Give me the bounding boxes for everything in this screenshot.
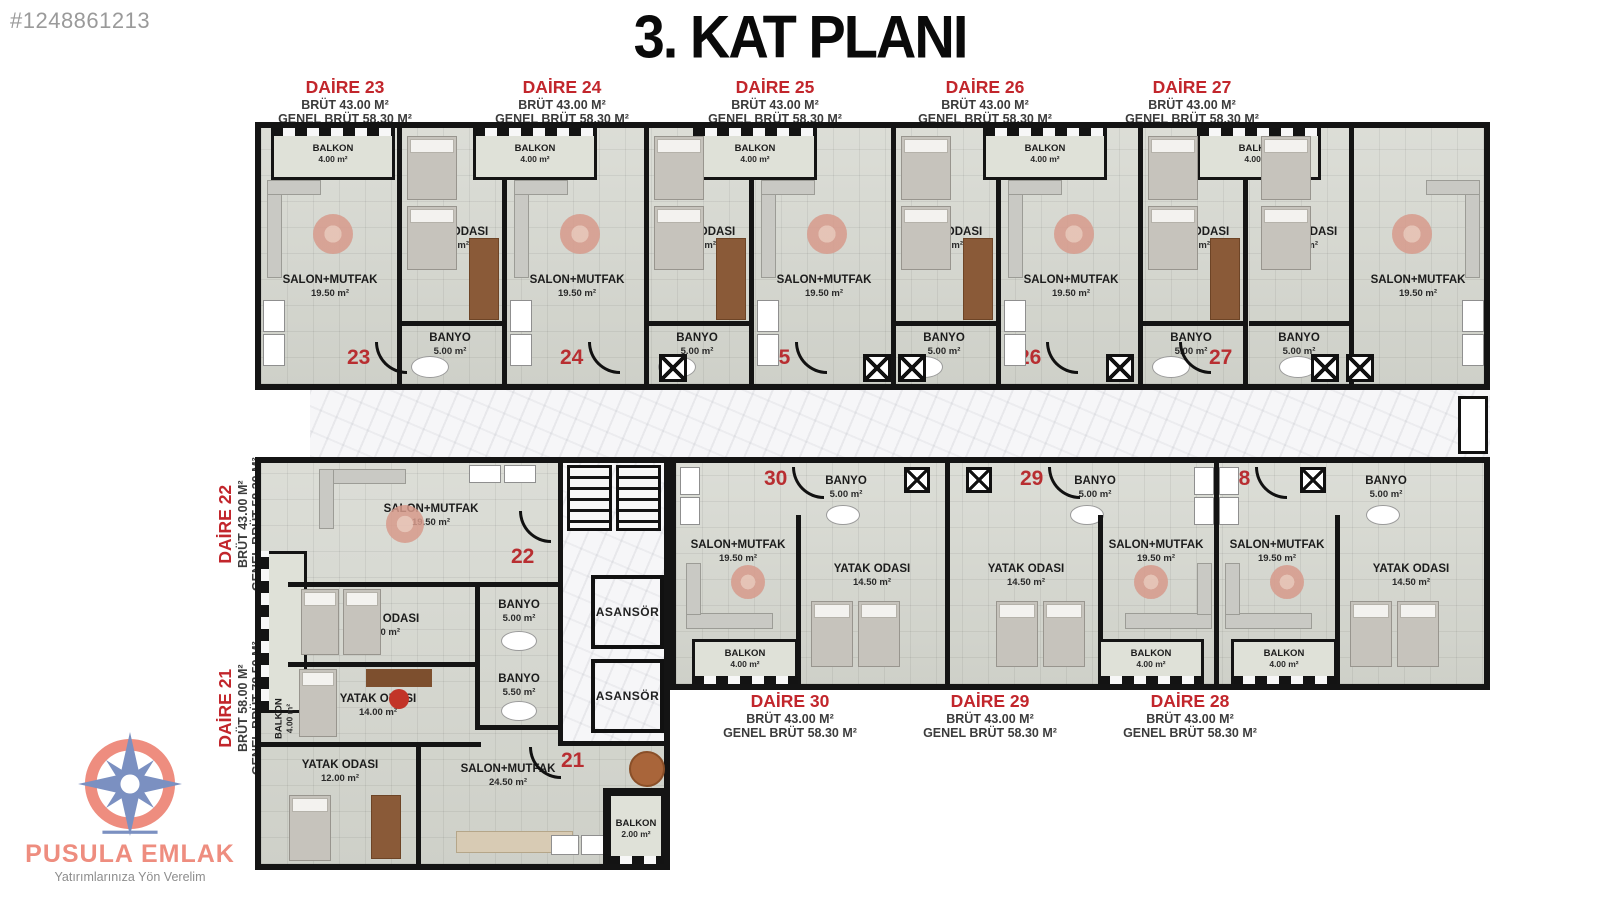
room-label: BALKON	[735, 143, 776, 154]
wall	[288, 662, 480, 667]
apt-header-26: DAİRE 26 BRÜT 43.00 M² GENEL BRÜT 58.30 …	[875, 78, 1095, 126]
wall	[1249, 321, 1349, 326]
balcony-30: BALKON4.00 m²	[692, 639, 798, 684]
apt-header-25: DAİRE 25 BRÜT 43.00 M² GENEL BRÜT 58.30 …	[665, 78, 885, 126]
room-label: SALON+MUTFAK	[1109, 539, 1204, 551]
wardrobe-icon	[371, 795, 401, 859]
room-label: BANYO	[676, 332, 718, 344]
balcony-24: BALKON4.00 m²	[473, 128, 597, 180]
shaft-x-icon	[966, 467, 992, 493]
bed-icon	[1261, 136, 1311, 200]
apt-brut: BRÜT 43.00 M²	[452, 98, 672, 112]
bathtub-icon	[501, 701, 537, 721]
room-area: 19.50 m²	[356, 517, 506, 528]
kitchen-icon	[551, 835, 579, 855]
room-label: SALON+MUTFAK	[1230, 539, 1325, 551]
bed-icon	[654, 206, 704, 270]
bathtub-icon	[826, 505, 860, 525]
rug-icon	[313, 214, 353, 254]
rug-icon	[386, 505, 424, 543]
unit-number-23: 23	[347, 346, 370, 370]
room-label: SALON+MUTFAK	[691, 539, 786, 551]
room-area: 5.00 m²	[1045, 489, 1145, 500]
room-area: 5.00 m²	[1336, 489, 1436, 500]
rug-icon	[1134, 565, 1168, 599]
room-label: BANYO	[429, 332, 471, 344]
unit-number-30: 30	[764, 467, 787, 491]
agency-slogan: Yatırımlarınıza Yön Verelim	[15, 870, 245, 884]
bed-icon	[1148, 206, 1198, 270]
room-area: 19.50 m²	[763, 288, 885, 299]
wall	[558, 741, 664, 746]
room-label: BALKON	[1131, 648, 1172, 659]
room-area: 19.50 m²	[1357, 288, 1479, 299]
room-label: BANYO	[498, 673, 540, 685]
wall	[945, 463, 950, 684]
apt-header-27: DAİRE 27 BRÜT 43.00 M² GENEL BRÜT 58.30 …	[1082, 78, 1302, 126]
apt-header-24: DAİRE 24 BRÜT 43.00 M² GENEL BRÜT 58.30 …	[452, 78, 672, 126]
stairs-icon	[616, 465, 661, 531]
balcony-railing	[608, 856, 664, 864]
wall	[1138, 321, 1243, 326]
balcony-25: BALKON4.00 m²	[693, 128, 817, 180]
kitchen-icon	[1219, 467, 1239, 495]
kitchen-icon	[757, 334, 779, 366]
bed-icon	[1148, 136, 1198, 200]
apt-brut: BRÜT 43.00 M²	[665, 98, 885, 112]
room-area: 14.50 m²	[1343, 577, 1479, 588]
room-label: BANYO	[498, 599, 540, 611]
kitchen-icon	[1462, 300, 1484, 332]
rug-icon	[807, 214, 847, 254]
bed-icon	[407, 136, 457, 200]
kitchen-icon	[510, 334, 532, 366]
door-arc-icon	[519, 511, 551, 543]
room-label: YATAK ODASI	[302, 759, 378, 771]
bed-icon	[1350, 601, 1392, 667]
room-label: BALKON	[1025, 143, 1066, 154]
sofa-icon	[1225, 563, 1240, 615]
bed-icon	[299, 669, 337, 737]
room-label: BALKON	[273, 698, 284, 739]
bed-icon	[289, 795, 331, 861]
apt-title: DAİRE 26	[875, 78, 1095, 98]
wardrobe-icon	[1210, 238, 1240, 320]
room-area: 19.50 m²	[269, 288, 391, 299]
apt-brut: BRÜT 43.00 M²	[1082, 98, 1302, 112]
room-label: BALKON	[616, 818, 657, 829]
unit-number-27: 27	[1209, 346, 1232, 370]
unit-number-21: 21	[561, 749, 584, 773]
sofa-icon	[319, 469, 334, 529]
shaft-x-icon	[659, 354, 687, 382]
room-label: BALKON	[725, 648, 766, 659]
kitchen-icon	[504, 465, 536, 483]
balcony-29: BALKON4.00 m²	[1098, 639, 1204, 684]
wall	[644, 321, 749, 326]
apt-brut: BRÜT 43.00 M²	[235, 98, 455, 112]
bed-icon	[301, 589, 339, 655]
balcony-railing	[473, 128, 597, 136]
balcony-railing	[1098, 676, 1204, 684]
room-area: 4.00 m²	[274, 154, 392, 164]
room-label: SALON+MUTFAK	[1371, 274, 1466, 286]
balcony-26: BALKON4.00 m²	[983, 128, 1107, 180]
shaft-x-icon	[1300, 467, 1326, 493]
bed-icon	[1397, 601, 1439, 667]
room-area: 19.50 m²	[1100, 553, 1212, 564]
wardrobe-icon	[963, 238, 993, 320]
door-arc-icon	[588, 342, 620, 374]
apt-title: DAİRE 27	[1082, 78, 1302, 98]
sofa-icon	[1225, 613, 1312, 629]
compass-icon	[77, 731, 183, 837]
bed-icon	[811, 601, 853, 667]
elevator-label: ASANSÖR	[596, 689, 660, 703]
room-label: BALKON	[1264, 648, 1305, 659]
room-label: YATAK ODASI	[988, 563, 1064, 575]
room-area: 12.00 m²	[273, 773, 407, 784]
door-arc-icon	[1046, 342, 1078, 374]
balcony-railing	[1231, 676, 1337, 684]
shaft-x-icon	[1106, 354, 1134, 382]
wall	[261, 742, 481, 747]
kitchen-icon	[1004, 334, 1026, 366]
room-area: 14.50 m²	[804, 577, 940, 588]
chair-icon	[389, 689, 409, 709]
room-area: 4.00 m²	[695, 659, 795, 669]
room-area: 4.00 m²	[986, 154, 1104, 164]
sofa-icon	[761, 180, 815, 195]
rug-icon	[1270, 565, 1304, 599]
room-label: YATAK ODASI	[834, 563, 910, 575]
wall	[1349, 128, 1354, 384]
unit-number-24: 24	[560, 346, 583, 370]
bed-icon	[901, 206, 951, 270]
bed-icon	[1043, 601, 1085, 667]
room-label: BANYO	[1365, 475, 1407, 487]
room-area: 5.00 m²	[796, 489, 896, 500]
apt-header-23: DAİRE 23 BRÜT 43.00 M² GENEL BRÜT 58.30 …	[235, 78, 455, 126]
kitchen-icon	[510, 300, 532, 332]
balcony-railing	[271, 128, 395, 136]
balcony-railing	[1197, 128, 1321, 136]
kitchen-icon	[1004, 300, 1026, 332]
room-label: BANYO	[825, 475, 867, 487]
sofa-icon	[1008, 180, 1062, 195]
room-label: BANYO	[1074, 475, 1116, 487]
room-label: BALKON	[313, 143, 354, 154]
bathtub-icon	[1366, 505, 1400, 525]
kitchen-icon	[1462, 334, 1484, 366]
room-area: 2.00 m²	[611, 829, 661, 839]
room-label: SALON+MUTFAK	[1024, 274, 1119, 286]
bed-icon	[407, 206, 457, 270]
bathtub-icon	[411, 356, 449, 378]
bottom-wing: 30 BANYO5.00 m² SALON+MUTFAK19.50 m² YAT…	[670, 457, 1490, 690]
wall	[397, 321, 502, 326]
door-arc-icon	[795, 342, 827, 374]
room-area: 5.00 m²	[480, 613, 558, 624]
sofa-icon	[514, 180, 568, 195]
room-label: BALKON	[515, 143, 556, 154]
corridor	[310, 390, 1490, 457]
balcony-railing	[693, 128, 817, 136]
sofa-icon	[1125, 613, 1212, 629]
sofa-icon	[686, 613, 773, 629]
room-area: 19.50 m²	[516, 288, 638, 299]
room-area: 5.00 m²	[402, 346, 498, 357]
room-label: BANYO	[923, 332, 965, 344]
dining-table-icon	[629, 751, 665, 787]
apt-title: DAİRE 25	[665, 78, 885, 98]
balcony-28: BALKON4.00 m²	[1231, 639, 1337, 684]
desk-icon	[366, 669, 432, 687]
sofa-icon	[1197, 563, 1212, 615]
sofa-icon	[686, 563, 701, 615]
corridor-window	[1458, 396, 1488, 454]
wall	[288, 582, 561, 587]
bed-icon	[343, 589, 381, 655]
room-area: 4.00 m²	[476, 154, 594, 164]
elevator: ASANSÖR	[591, 575, 664, 649]
apt-title: DAİRE 24	[452, 78, 672, 98]
agency-name: PUSULA EMLAK	[15, 842, 245, 867]
kitchen-icon	[469, 465, 501, 483]
kitchen-icon	[1194, 497, 1214, 525]
unit-number-29: 29	[1020, 467, 1043, 491]
kitchen-icon	[1194, 467, 1214, 495]
room-label: YATAK ODASI	[1373, 563, 1449, 575]
room-area: 14.50 m²	[958, 577, 1094, 588]
shaft-x-icon	[904, 467, 930, 493]
apt-title: DAİRE 22	[216, 424, 236, 624]
sofa-icon	[267, 180, 321, 195]
balcony-23: BALKON4.00 m²	[271, 128, 395, 180]
apt-brut: BRÜT 43.00 M²	[236, 424, 250, 624]
elevator-label: ASANSÖR	[596, 605, 660, 619]
room-area: 4.00 m²	[696, 154, 814, 164]
bed-icon	[901, 136, 951, 200]
bed-icon	[996, 601, 1038, 667]
rug-icon	[1392, 214, 1432, 254]
room-area: 4.00 m²	[1101, 659, 1201, 669]
wardrobe-icon	[469, 238, 499, 320]
rug-icon	[1054, 214, 1094, 254]
sofa-icon	[1426, 180, 1480, 195]
agency-logo: PUSULA EMLAK Yatırımlarınıza Yön Verelim	[15, 731, 245, 884]
top-wing: BALKON4.00 m² BALKON4.00 m² BALKON4.00 m…	[255, 122, 1490, 390]
wardrobe-icon	[716, 238, 746, 320]
left-wing: ASANSÖR ASANSÖR BALKON4.00 m² SALON+MUTF…	[255, 457, 670, 870]
bed-icon	[1261, 206, 1311, 270]
apt-title: DAİRE 23	[235, 78, 455, 98]
rug-icon	[731, 565, 765, 599]
bathtub-icon	[501, 631, 537, 651]
apt-brut: BRÜT 43.00 M²	[875, 98, 1095, 112]
door-arc-icon	[1255, 467, 1287, 499]
door-arc-icon	[375, 342, 407, 374]
room-label: BANYO	[1278, 332, 1320, 344]
shaft-x-icon	[898, 354, 926, 382]
kitchen-icon	[1219, 497, 1239, 525]
wall	[891, 321, 996, 326]
bed-icon	[654, 136, 704, 200]
bed-icon	[858, 601, 900, 667]
balcony-railing	[261, 551, 269, 713]
room-area: 5.50 m²	[480, 687, 558, 698]
room-area: 19.50 m²	[1010, 288, 1132, 299]
balcony-railing	[692, 676, 798, 684]
listing-id: #1248861213	[10, 8, 150, 34]
room-label: SALON+MUTFAK	[530, 274, 625, 286]
kitchen-icon	[757, 300, 779, 332]
wall	[475, 725, 563, 730]
wall	[558, 463, 563, 745]
balcony-railing	[983, 128, 1107, 136]
shaft-x-icon	[863, 354, 891, 382]
elevator: ASANSÖR	[591, 659, 664, 733]
room-label: SALON+MUTFAK	[283, 274, 378, 286]
kitchen-icon	[263, 334, 285, 366]
shaft-x-icon	[1311, 354, 1339, 382]
wall	[416, 747, 421, 864]
page-title: 3. KAT PLANI	[634, 1, 967, 71]
balcony-21: BALKON2.00 m²	[608, 793, 664, 864]
rug-icon	[560, 214, 600, 254]
shaft-x-icon	[1346, 354, 1374, 382]
stairs-icon	[567, 465, 612, 531]
kitchen-icon	[680, 497, 700, 525]
room-area: 4.00 m²	[1234, 659, 1334, 669]
floor-plan: BALKON4.00 m² BALKON4.00 m² BALKON4.00 m…	[255, 122, 1490, 870]
room-label: SALON+MUTFAK	[777, 274, 872, 286]
kitchen-icon	[263, 300, 285, 332]
unit-number-22: 22	[511, 545, 534, 569]
kitchen-icon	[680, 467, 700, 495]
